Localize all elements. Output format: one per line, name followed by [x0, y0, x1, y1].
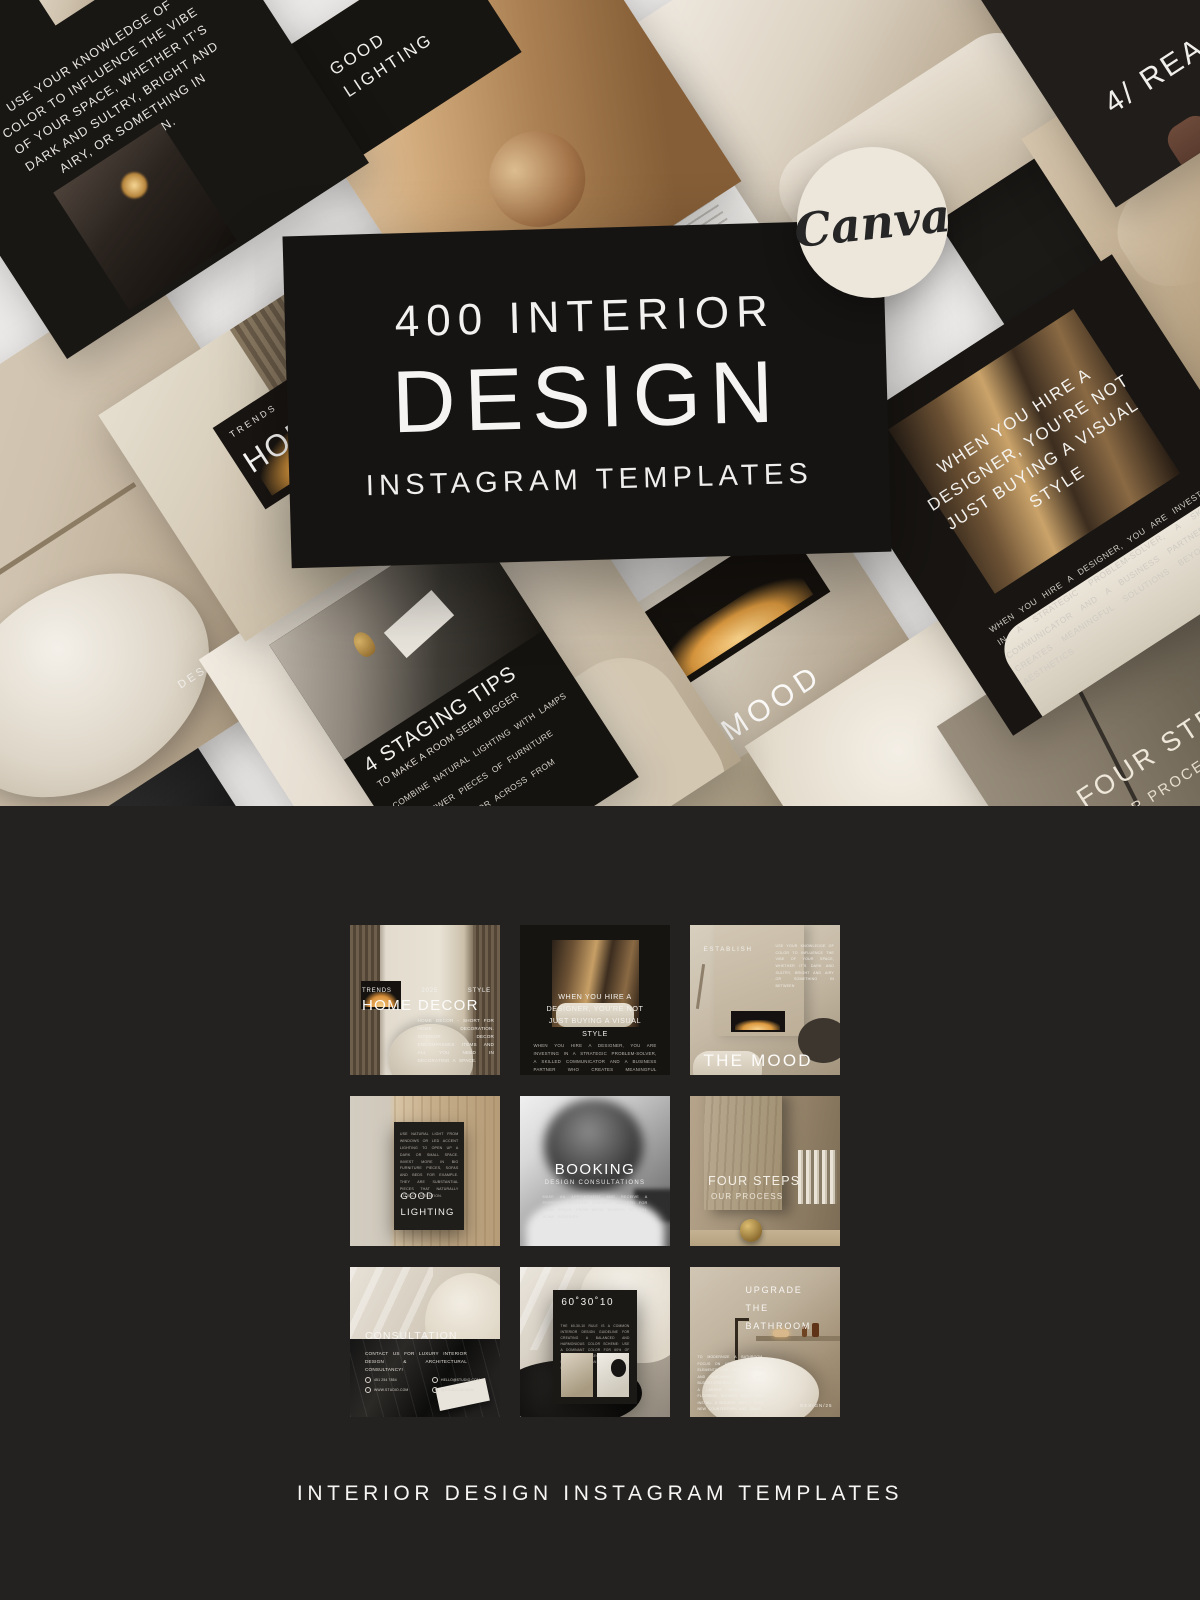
- hero-collage-section: USE YOUR KNOWLEDGE OF COLOR TO INFLUENCE…: [0, 0, 1200, 806]
- reasons-title: 4/ REASONS: [1098, 0, 1200, 121]
- banner-title-line1: 400 INTERIOR: [394, 286, 776, 347]
- footer-caption: INTERIOR DESIGN INSTAGRAM TEMPLATES: [0, 1482, 1200, 1506]
- kicker-row: TRENDS 2025 STYLE: [362, 988, 491, 994]
- grid-cell-good-lighting: USE NATURAL LIGHT FROM WINDOWS OR LED AC…: [350, 1096, 500, 1246]
- good-lighting-title: GOOD LIGHTING: [401, 1189, 455, 1219]
- contact-item: HELLO@STUDIO.COM: [432, 1377, 491, 1383]
- contact-text: WWW.STUDIO.COM: [374, 1388, 408, 1392]
- the-mood-title: THE MOOD: [704, 1051, 813, 1071]
- template-grid: TRENDS 2025 STYLE HOME DECOR HOME DECOR …: [350, 925, 840, 1417]
- flames-shape: [735, 1020, 780, 1030]
- woman-portrait-shape: [544, 1099, 643, 1192]
- rule-panel: 60˚30˚10 THE 60-30-10 RULE IS A COMMON I…: [553, 1290, 637, 1404]
- fireplace-shape: [731, 1011, 785, 1032]
- home-decor-body: HOME DECOR - SHORT FOR HOME DECORATION. …: [418, 1017, 495, 1065]
- booking-subtitle: DESIGN CONSULTATIONS: [520, 1180, 670, 1186]
- floor-shape: [690, 1230, 840, 1247]
- booking-body: MAKE AN APPOINTMENT AND RECEIVE A PERSON…: [543, 1194, 648, 1221]
- contact-item: WWW.STUDIO.COM: [365, 1387, 424, 1393]
- round-mirror-shape: [611, 1359, 626, 1376]
- contact-item: 451 254 7854: [365, 1377, 424, 1383]
- grid-cell-booking: BOOKING DESIGN CONSULTATIONS MAKE AN APP…: [520, 1096, 670, 1246]
- contact-text: @STUDIO.DESIGN: [441, 1388, 474, 1392]
- good-lighting-panel: USE NATURAL LIGHT FROM WINDOWS OR LED AC…: [394, 1122, 465, 1230]
- inset-photo: [597, 1353, 629, 1396]
- inset-photo: [561, 1353, 593, 1396]
- home-decor-title: HOME DECOR: [362, 997, 479, 1014]
- shelf-shape: [756, 1336, 840, 1341]
- grid-section: TRENDS 2025 STYLE HOME DECOR HOME DECOR …: [0, 806, 1200, 1600]
- phone-icon: [365, 1377, 371, 1383]
- grid-cell-consultation: CONSULTATION CONTACT US FOR LUXURY INTER…: [350, 1267, 500, 1417]
- wood-sphere-shape: [471, 113, 604, 246]
- contact-text: 451 254 7854: [374, 1378, 397, 1382]
- upgrade-bathroom-title: UPGRADE THE BATHROOM: [746, 1281, 841, 1335]
- inset-photos: [561, 1353, 630, 1396]
- establish-kicker: ESTABLISH: [704, 946, 753, 953]
- kicker-year: 2025: [421, 988, 438, 994]
- social-icon: [432, 1387, 438, 1393]
- kicker-style: STYLE: [468, 988, 491, 994]
- banner-title-line3: INSTAGRAM TEMPLATES: [365, 457, 813, 502]
- consultation-body: CONTACT US FOR LUXURY INTERIOR DESIGN & …: [365, 1350, 467, 1375]
- four-steps-title: FOUR STEPS: [708, 1174, 800, 1188]
- good-lighting-text: GOOD LIGHTING: [325, 5, 439, 105]
- grid-cell-upgrade-bathroom: UPGRADE THE BATHROOM TO MODERNIZE A BATH…: [690, 1267, 840, 1417]
- book-shape: [383, 590, 453, 658]
- design-25-tag: DESIGN/25: [800, 1403, 832, 1408]
- grid-cell-home-decor: TRENDS 2025 STYLE HOME DECOR HOME DECOR …: [350, 925, 500, 1075]
- designer-quote-body: WHEN YOU HIRE A DESIGNER, YOU ARE INVEST…: [534, 1042, 657, 1075]
- contact-item: @STUDIO.DESIGN: [432, 1387, 491, 1393]
- grid-cell-four-steps: FOUR STEPS OUR PROCESS: [690, 1096, 840, 1246]
- contact-list: 451 254 7854 HELLO@STUDIO.COM WWW.STUDIO…: [365, 1377, 491, 1393]
- pendant-lamp-shape: [116, 167, 152, 203]
- four-steps-subtitle: OUR PROCESS: [711, 1192, 783, 1201]
- rule-title: 60˚30˚10: [561, 1297, 614, 1308]
- grid-cell-designer-quote: WHEN YOU HIRE A DESIGNER, YOU'RE NOT JUS…: [520, 925, 670, 1075]
- grid-cell-the-mood: ESTABLISH USE YOUR KNOWLEDGE OF COLOR TO…: [690, 925, 840, 1075]
- canva-logo: Canva: [792, 187, 953, 257]
- hero-banner: 400 INTERIOR DESIGN INSTAGRAM TEMPLATES: [282, 220, 891, 569]
- bookshelf-shape: [798, 1150, 837, 1204]
- grid-cell-60-30-10: 60˚30˚10 THE 60-30-10 RULE IS A COMMON I…: [520, 1267, 670, 1417]
- banner-title-line2: DESIGN: [391, 340, 784, 453]
- color-vibe-note: USE YOUR KNOWLEDGE OF COLOR TO INFLUENCE…: [776, 943, 835, 989]
- kicker-trends: TRENDS: [362, 988, 392, 994]
- contact-text: HELLO@STUDIO.COM: [441, 1378, 480, 1382]
- branch-shape: [696, 964, 705, 1009]
- brass-ball-shape: [740, 1219, 763, 1242]
- designer-quote-headline: WHEN YOU HIRE A DESIGNER, YOU'RE NOT JUS…: [526, 991, 664, 1040]
- booking-title: BOOKING: [520, 1161, 670, 1178]
- gold-vase-shape: [350, 629, 379, 661]
- upgrade-bathroom-body: TO MODERNIZE A BATHROOM, FOCUS ON UPDATE…: [698, 1354, 764, 1412]
- product-listing-image: USE YOUR KNOWLEDGE OF COLOR TO INFLUENCE…: [0, 0, 1200, 1600]
- consultation-title: CONSULTATION: [365, 1330, 458, 1342]
- email-icon: [432, 1377, 438, 1383]
- canva-badge: Canva: [797, 147, 948, 298]
- web-icon: [365, 1387, 371, 1393]
